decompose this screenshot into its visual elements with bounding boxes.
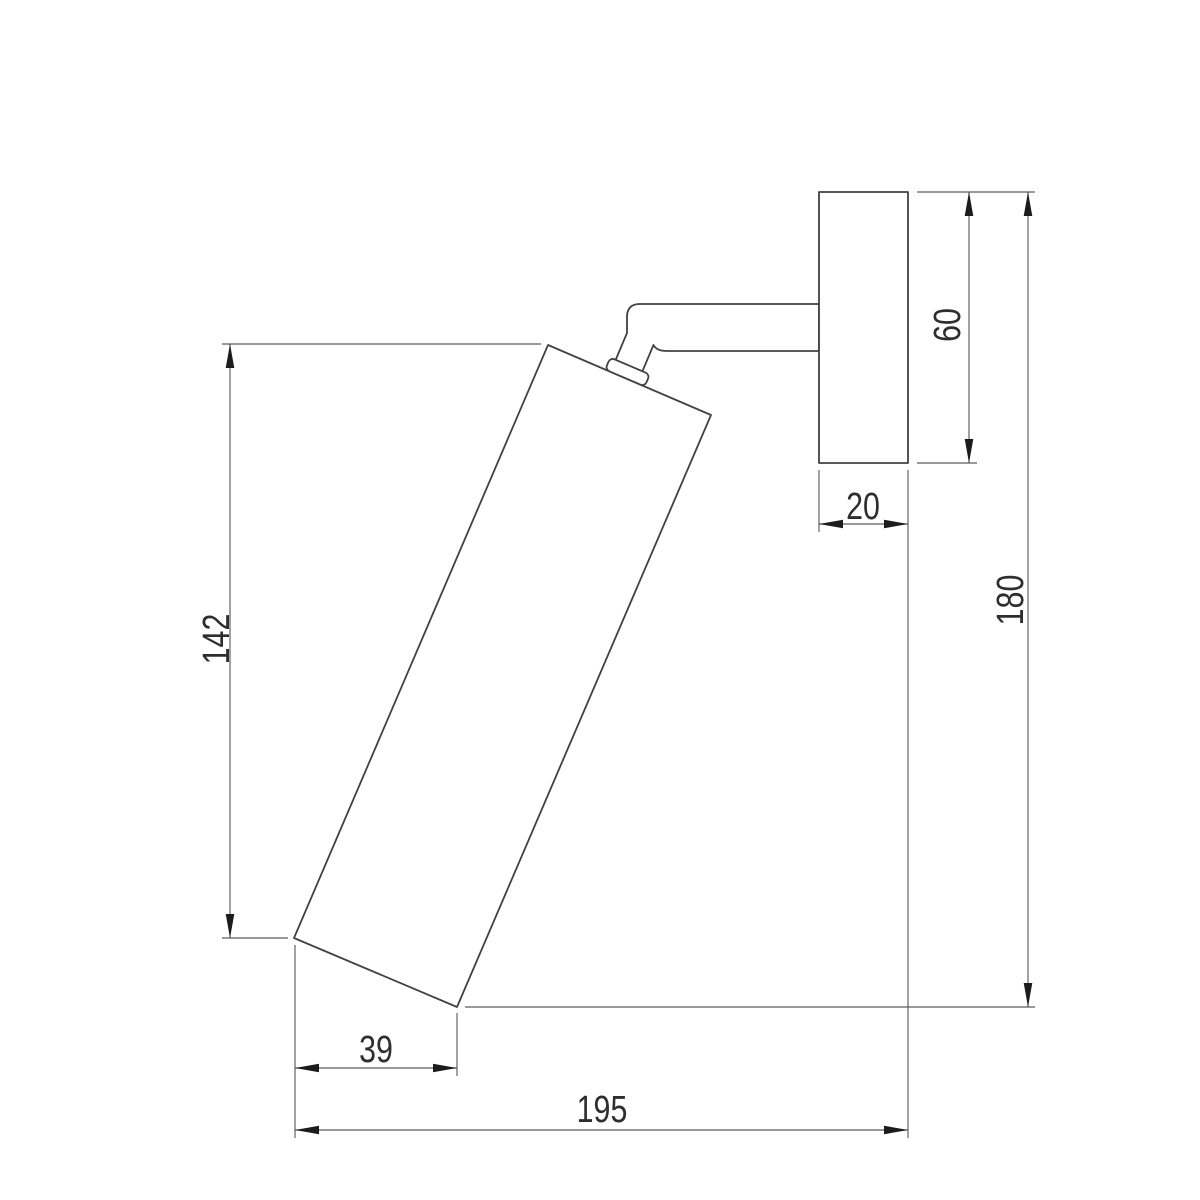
dimension-195: 195 xyxy=(295,1089,908,1131)
dimension-39: 39 xyxy=(295,1029,457,1071)
drawing-canvas: 142 60 180 20 39 195 xyxy=(0,0,1200,1200)
dim-label-142: 142 xyxy=(196,614,238,665)
dim-label-195: 195 xyxy=(577,1089,628,1131)
dim-label-180: 180 xyxy=(990,575,1032,626)
dimension-60: 60 xyxy=(927,192,969,463)
dim-label-20: 20 xyxy=(846,486,880,528)
dimension-180: 180 xyxy=(990,192,1032,1007)
wall-mount-plate xyxy=(819,192,908,463)
lamp-parts xyxy=(294,192,908,1007)
dim-label-60: 60 xyxy=(927,308,969,342)
lamp-body xyxy=(294,345,711,1007)
mounting-arm xyxy=(616,304,819,371)
dim-label-39: 39 xyxy=(359,1029,393,1071)
dimension-142: 142 xyxy=(196,344,238,938)
dimension-20: 20 xyxy=(819,486,908,528)
wall-lamp-technical-drawing: 142 60 180 20 39 195 xyxy=(0,0,1200,1200)
